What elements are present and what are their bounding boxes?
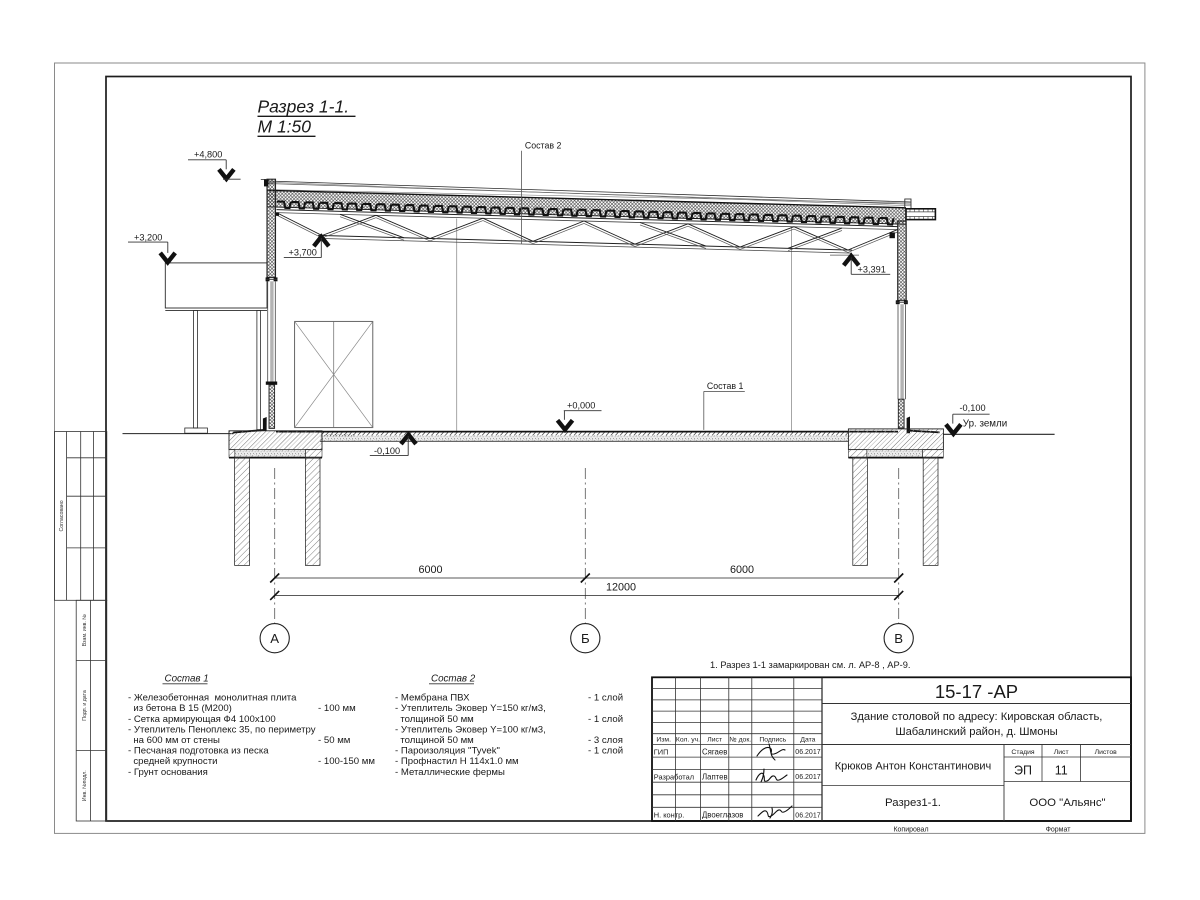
svg-text:+3,391: +3,391 [858, 264, 886, 274]
svg-text:- 3 слоя: - 3 слоя [588, 735, 623, 746]
svg-text:+3,700: +3,700 [289, 248, 317, 258]
svg-text:толщиной 50 мм: толщиной 50 мм [395, 714, 474, 725]
svg-text:Состав 2: Состав 2 [525, 141, 562, 151]
svg-text:Здание столовой по адресу: Кир: Здание столовой по адресу: Кировская обл… [851, 711, 1103, 723]
svg-text:Кол. уч.: Кол. уч. [676, 737, 700, 744]
svg-text:- Пароизоляция "Tyvek": - Пароизоляция "Tyvek" [395, 746, 500, 757]
svg-text:- 100-150 мм: - 100-150 мм [318, 756, 375, 767]
svg-text:- 100 мм: - 100 мм [318, 703, 356, 714]
svg-text:Лист: Лист [707, 737, 722, 744]
svg-text:- Утеплитель Эковер Y=100 кг/м: - Утеплитель Эковер Y=100 кг/м3, [395, 724, 546, 735]
svg-text:Б: Б [581, 631, 590, 646]
svg-text:№ док.: № док. [729, 737, 751, 744]
svg-text:-0,100: -0,100 [374, 446, 400, 456]
svg-text:Листов: Листов [1095, 749, 1117, 756]
svg-text:- 1 слой: - 1 слой [588, 714, 623, 725]
svg-text:06.2017: 06.2017 [795, 812, 820, 819]
svg-text:Разрез 1-1.: Разрез 1-1. [258, 96, 350, 116]
svg-text:06.2017: 06.2017 [795, 749, 820, 756]
svg-text:- 50 мм: - 50 мм [318, 735, 350, 746]
svg-text:- 1 слой: - 1 слой [588, 746, 623, 757]
svg-text:6000: 6000 [418, 564, 442, 576]
svg-text:- Песчаная подготовка из песка: - Песчаная подготовка из песка [128, 746, 269, 757]
svg-text:Дата: Дата [800, 737, 815, 744]
svg-text:Н. контр.: Н. контр. [654, 811, 685, 820]
svg-text:ООО "Альянс": ООО "Альянс" [1029, 797, 1105, 809]
svg-text:Состав 1: Состав 1 [165, 674, 209, 685]
svg-text:- Утеплитель Эковер Y=150 кг/м: - Утеплитель Эковер Y=150 кг/м3, [395, 703, 546, 714]
svg-text:средней крупности: средней крупности [128, 756, 217, 767]
svg-text:М 1:50: М 1:50 [258, 116, 312, 136]
svg-text:Состав 1: Состав 1 [707, 381, 744, 391]
svg-text:Лаптев: Лаптев [702, 772, 728, 781]
svg-text:Подп. и дата: Подп. и дата [82, 690, 88, 721]
svg-text:1. Разрез 1-1 замаркирован см.: 1. Разрез 1-1 замаркирован см. л. АР-8 ,… [710, 660, 911, 670]
svg-text:В: В [894, 631, 903, 646]
svg-text:+3,200: +3,200 [134, 232, 162, 242]
svg-text:ЭП: ЭП [1014, 764, 1032, 778]
svg-text:Подпись: Подпись [759, 737, 786, 744]
svg-text:Стадия: Стадия [1011, 749, 1034, 756]
svg-text:11: 11 [1055, 764, 1068, 778]
svg-text:- Железобетонная монолитная п: - Железобетонная монолитная плита [128, 693, 297, 704]
svg-text:06.2017: 06.2017 [795, 774, 820, 781]
svg-text:ГИП: ГИП [654, 747, 669, 756]
svg-text:из бетона В 15 (М200): из бетона В 15 (М200) [128, 703, 232, 714]
svg-text:на 600 мм от стены: на 600 мм от стены [128, 735, 220, 746]
svg-text:Шабалинский район, д. Шмоны: Шабалинский район, д. Шмоны [895, 726, 1057, 738]
svg-text:Двоеглазов: Двоеглазов [702, 811, 743, 820]
svg-text:Крюков Антон Константинович: Крюков Антон Константинович [835, 761, 992, 773]
svg-text:Инв. №подл.: Инв. №подл. [82, 770, 88, 801]
svg-text:- 1 слой: - 1 слой [588, 693, 623, 704]
svg-text:- Сетка армирующая Ф4 100х100: - Сетка армирующая Ф4 100х100 [128, 714, 276, 725]
svg-text:15-17 -АР: 15-17 -АР [935, 681, 1018, 702]
svg-text:Лист: Лист [1054, 749, 1069, 756]
svg-text:- Профнастил Н 114х1.0 мм: - Профнастил Н 114х1.0 мм [395, 756, 519, 767]
svg-text:Сягаев: Сягаев [702, 747, 727, 756]
svg-text:- Металлические фермы: - Металлические фермы [395, 767, 505, 778]
svg-text:6000: 6000 [730, 564, 754, 576]
svg-text:толщиной 50 мм: толщиной 50 мм [395, 735, 474, 746]
svg-text:Разработал: Разработал [654, 772, 694, 781]
svg-text:А: А [270, 631, 279, 646]
svg-text:Копировал: Копировал [893, 827, 928, 834]
svg-text:12000: 12000 [606, 581, 636, 593]
svg-text:Разрез1-1.: Разрез1-1. [885, 797, 941, 809]
svg-text:Согласовано: Согласовано [59, 500, 65, 531]
svg-text:Формат: Формат [1046, 827, 1072, 834]
svg-text:+4,800: +4,800 [194, 149, 222, 159]
svg-text:- Мембрана ПВХ: - Мембрана ПВХ [395, 693, 470, 704]
svg-text:+0,000: +0,000 [567, 400, 595, 410]
svg-text:-0,100: -0,100 [960, 403, 986, 413]
svg-text:Состав 2: Состав 2 [431, 674, 476, 685]
svg-text:Взам. инв. №: Взам. инв. № [82, 614, 88, 647]
svg-text:Ур. земли: Ур. земли [963, 418, 1007, 429]
svg-text:- Грунт основания: - Грунт основания [128, 767, 208, 778]
svg-text:- Утеплитель Пеноплекс 35, по: - Утеплитель Пеноплекс 35, по периметру [128, 724, 316, 735]
svg-text:Изм.: Изм. [656, 737, 671, 744]
